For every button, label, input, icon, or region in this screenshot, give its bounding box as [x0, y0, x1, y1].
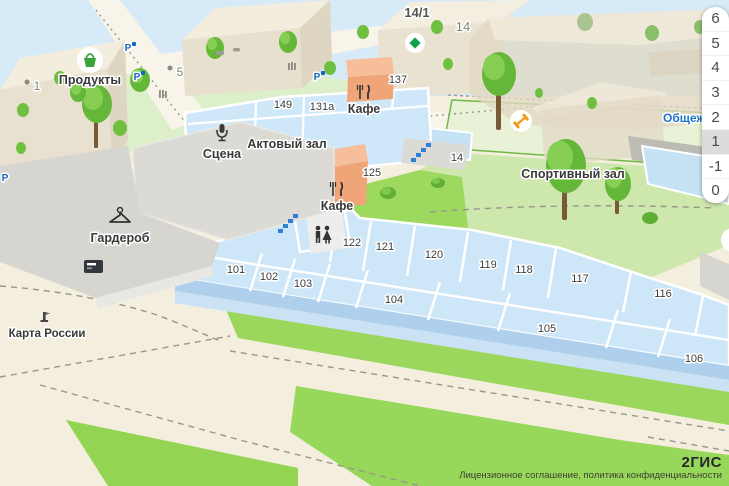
floor-button-2[interactable]: 2 [702, 104, 729, 129]
sports-marker[interactable] [510, 110, 532, 132]
label-cafe-2[interactable]: Кафе [321, 199, 354, 213]
label-address-14: 14 [456, 19, 470, 34]
label-cafe-1[interactable]: Кафе [348, 102, 381, 116]
parking-letter: P [125, 43, 132, 54]
label-stage: Сцена [203, 147, 242, 161]
tree [279, 31, 297, 53]
tree [577, 13, 593, 31]
label-russia-map: Карта России [9, 328, 86, 340]
label-address-1: 1 [34, 79, 41, 93]
room-label-121: 121 [376, 241, 394, 253]
room-label-149: 149 [274, 99, 292, 111]
room-label-125: 125 [363, 167, 381, 179]
label-assembly-hall: Актовый зал [247, 137, 326, 151]
room-label-118: 118 [515, 264, 533, 276]
room-label-122: 122 [343, 237, 361, 249]
room-label-116: 116 [654, 288, 672, 300]
parking-icon[interactable]: P [2, 173, 9, 184]
license-links[interactable]: Лицензионное соглашение, политика конфид… [459, 471, 722, 482]
floor-button-6[interactable]: 6 [702, 7, 729, 31]
tree [16, 142, 26, 154]
room-label-137: 137 [389, 74, 407, 86]
label-groceries[interactable]: Продукты [59, 73, 121, 87]
room-label-102: 102 [260, 271, 278, 283]
parking-letter: P [2, 173, 9, 184]
label-address-14-1: 14/1 [404, 5, 429, 20]
room-label-120: 120 [425, 249, 443, 261]
floor-selector: 6 5 4 3 2 1 -1 0 [702, 7, 729, 203]
map-canvas[interactable]: 14/1 14 1 5 Продукты Сцена Актовый зал К… [0, 0, 729, 486]
room-label-101: 101 [227, 264, 245, 276]
tree [17, 103, 29, 117]
fence-icon [288, 62, 296, 70]
parking-letter: P [314, 72, 321, 83]
label-sports-hall: Спортивный зал [521, 167, 625, 181]
groceries-marker[interactable] [77, 47, 103, 73]
room-label-119: 119 [479, 259, 497, 271]
tree [324, 61, 336, 75]
floor-button-4[interactable]: 4 [702, 55, 729, 80]
label-address-5: 5 [177, 65, 184, 79]
room-label-106: 106 [685, 353, 703, 365]
bush [642, 212, 658, 224]
tree [206, 37, 224, 59]
room-label-105: 105 [538, 323, 556, 335]
floor-button-3[interactable]: 3 [702, 80, 729, 105]
tree [113, 120, 127, 136]
address-dot [25, 80, 30, 85]
floor-button-0[interactable]: 0 [702, 178, 729, 203]
label-cloakroom: Гардероб [90, 231, 149, 245]
2gis-logo[interactable]: 2ГИС [459, 454, 722, 471]
bush [380, 187, 396, 199]
tree [431, 20, 443, 34]
floor-button-1-selected[interactable]: 1 [702, 129, 729, 154]
floor-button-5[interactable]: 5 [702, 31, 729, 56]
floor-button-minus1[interactable]: -1 [702, 154, 729, 179]
bush [431, 178, 445, 188]
poi-marker[interactable] [405, 33, 425, 53]
tree [357, 25, 369, 39]
fence-icon [159, 90, 167, 98]
atm-icon[interactable] [84, 260, 103, 273]
tree [443, 58, 453, 70]
address-dot [168, 66, 173, 71]
room-label-117: 117 [571, 273, 589, 285]
tree [645, 25, 659, 41]
room-label-14: 14 [451, 152, 463, 164]
parking-letter: P [134, 72, 141, 83]
room-label-103: 103 [294, 278, 312, 290]
room-label-131a: 131а [310, 101, 335, 113]
tree [535, 88, 543, 98]
attribution: 2ГИС Лицензионное соглашение, политика к… [459, 454, 722, 482]
room-label-104: 104 [385, 294, 403, 306]
map-app-window: 14/1 14 1 5 Продукты Сцена Актовый зал К… [0, 0, 729, 486]
tree [587, 97, 597, 109]
